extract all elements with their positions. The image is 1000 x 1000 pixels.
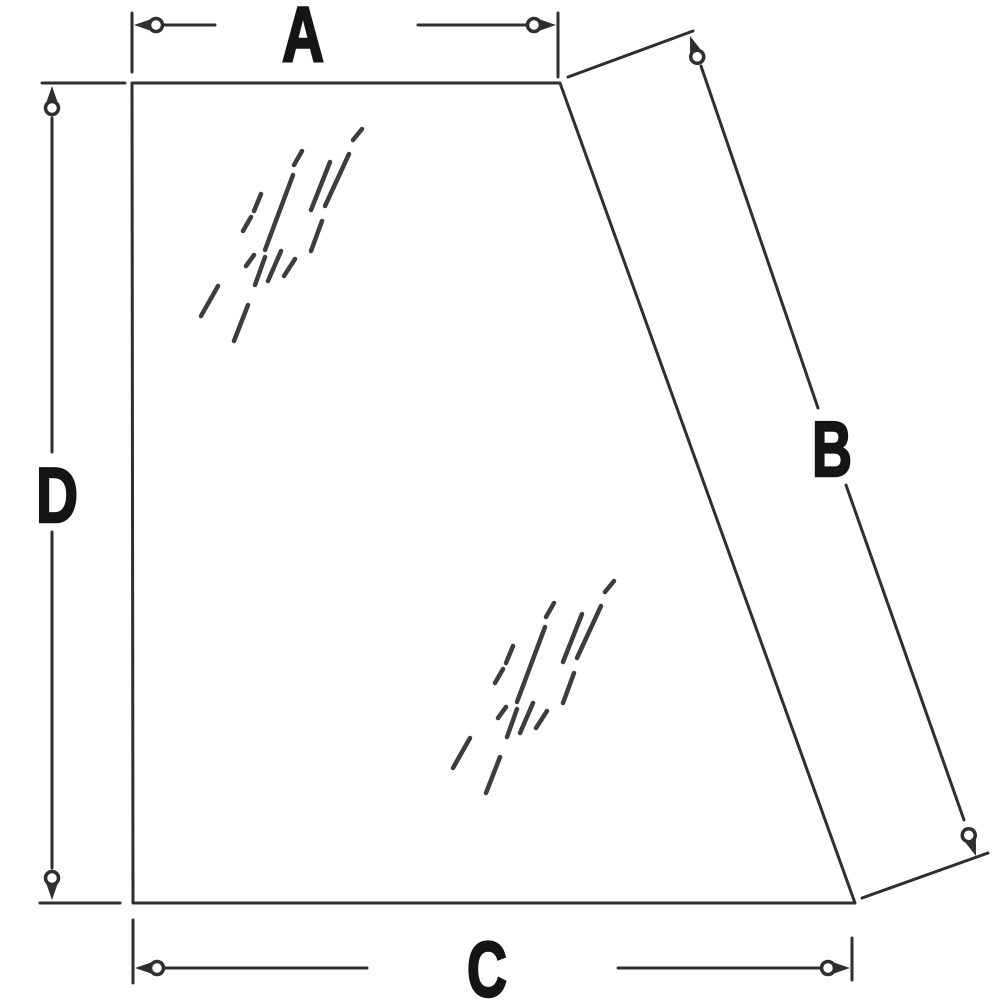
c-arrow-left-icon bbox=[135, 962, 164, 975]
label-c: C bbox=[467, 925, 507, 1000]
dimension-diagram-page: A B C D bbox=[0, 0, 1000, 1000]
dimension-c: C bbox=[133, 920, 852, 1000]
c-arrow-right-icon bbox=[822, 962, 851, 975]
a-arrow-right-icon bbox=[528, 19, 557, 32]
b-extension-top bbox=[568, 31, 693, 77]
shine-cluster-upper bbox=[201, 129, 362, 341]
b-dimline-lower bbox=[846, 485, 964, 820]
a-arrow-left-icon bbox=[134, 19, 163, 32]
dimension-d: D bbox=[36, 83, 125, 903]
dimension-b: B bbox=[568, 31, 988, 898]
b-extension-bottom bbox=[862, 853, 988, 898]
glass-panel-dimension-diagram: A B C D bbox=[0, 0, 1000, 1000]
panel-edge-path bbox=[132, 83, 855, 903]
glass-shine-marks bbox=[201, 129, 614, 793]
shine-cluster-lower bbox=[453, 581, 614, 793]
label-b: B bbox=[812, 405, 852, 493]
d-arrow-top-icon bbox=[46, 86, 59, 115]
label-a: A bbox=[282, 0, 324, 78]
b-arrow-bottom-icon bbox=[960, 827, 982, 858]
d-arrow-bottom-icon bbox=[46, 872, 59, 901]
label-d: D bbox=[36, 451, 78, 539]
glass-panel-outline bbox=[132, 83, 855, 903]
dimension-a: A bbox=[132, 0, 558, 78]
b-arrow-top-icon bbox=[684, 34, 706, 65]
b-dimline-upper bbox=[701, 66, 818, 408]
